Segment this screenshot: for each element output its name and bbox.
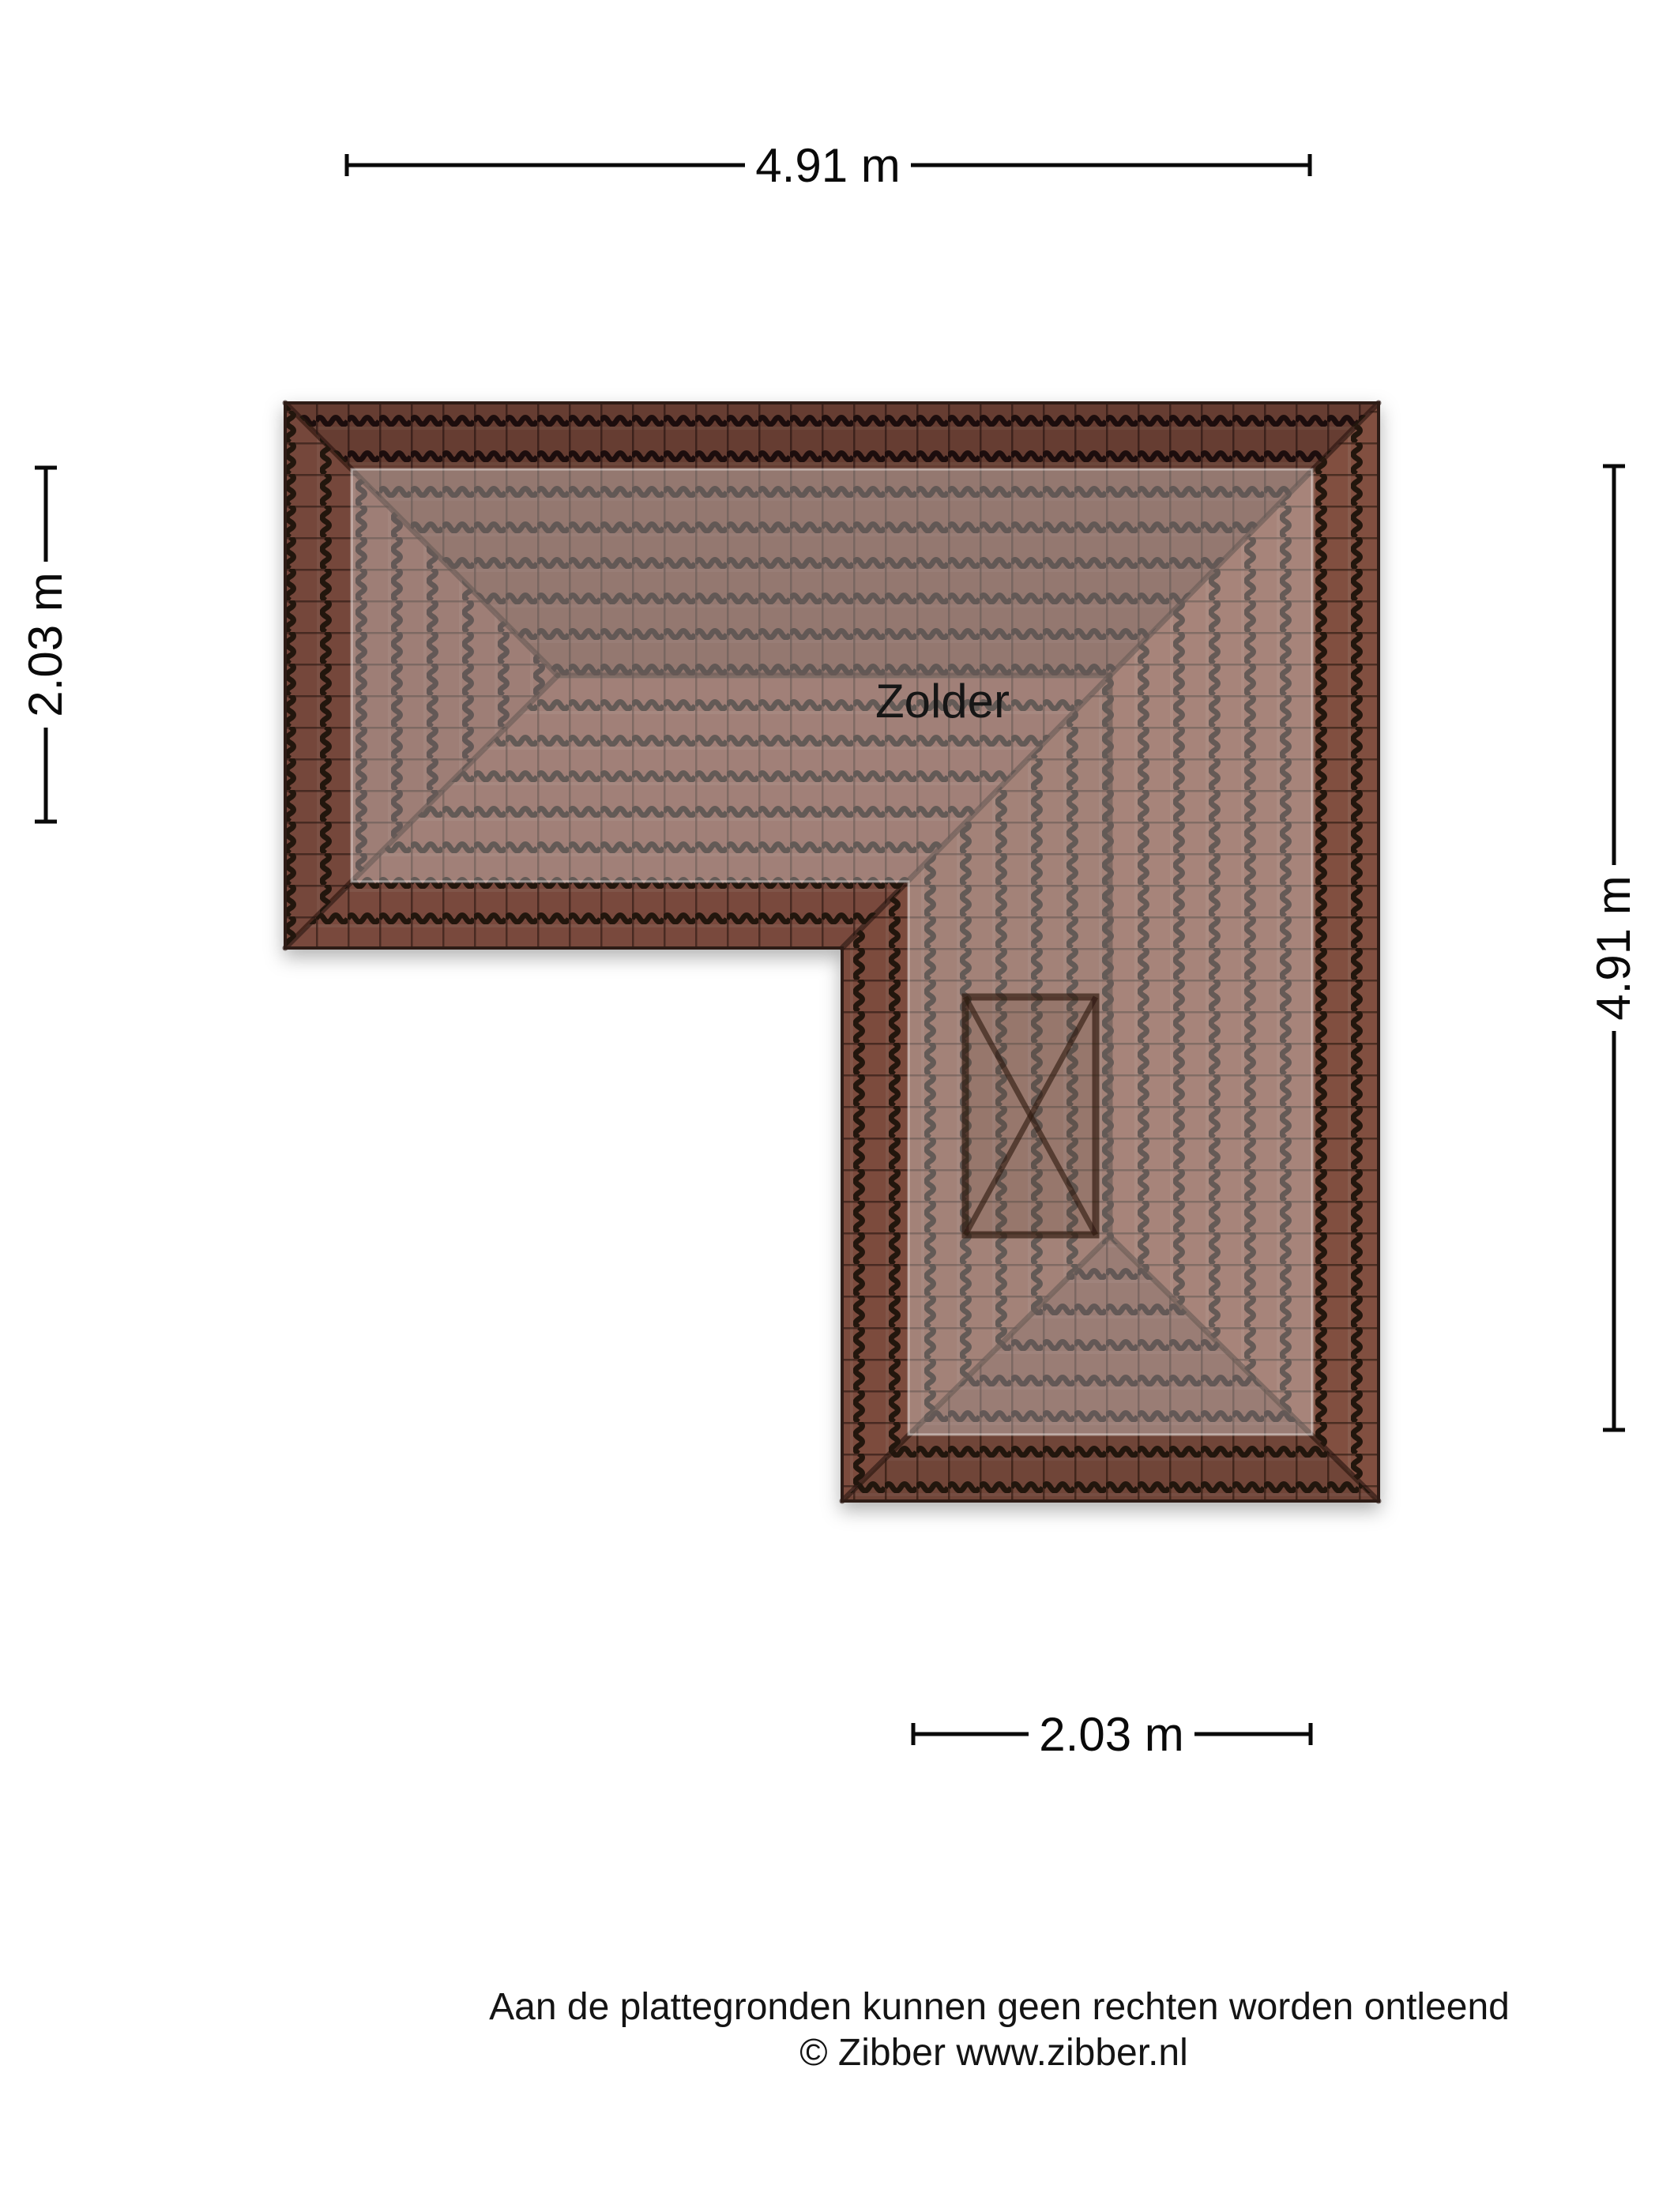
dimension-left: 2.03 m xyxy=(19,468,72,822)
footer-disclaimer: Aan de plattegronden kunnen geen rechten… xyxy=(489,1986,1510,2028)
dimension-right: 4.91 m xyxy=(1587,466,1640,1430)
room-label: Zolder xyxy=(875,675,1010,728)
footer: Aan de plattegronden kunnen geen rechten… xyxy=(489,1986,1510,2074)
floorplan-canvas: Zolder 4.91 m 2.03 m 4.91 m 2.03 m Aan d… xyxy=(0,0,1659,2212)
roof-plan: Zolder xyxy=(285,403,1379,1501)
attic-floor-overlay xyxy=(352,469,1312,1435)
floorplan-page: Zolder 4.91 m 2.03 m 4.91 m 2.03 m Aan d… xyxy=(0,0,1659,2212)
dimension-bottom: 2.03 m xyxy=(913,1708,1311,1761)
dimension-bottom-label: 2.03 m xyxy=(1039,1708,1183,1761)
dimension-top: 4.91 m xyxy=(347,139,1310,192)
dimension-right-label: 4.91 m xyxy=(1587,875,1640,1020)
skylight-symbol xyxy=(965,997,1096,1235)
dimension-left-label: 2.03 m xyxy=(19,572,72,717)
footer-copyright: © Zibber www.zibber.nl xyxy=(799,2032,1188,2074)
dimension-top-label: 4.91 m xyxy=(755,139,900,192)
